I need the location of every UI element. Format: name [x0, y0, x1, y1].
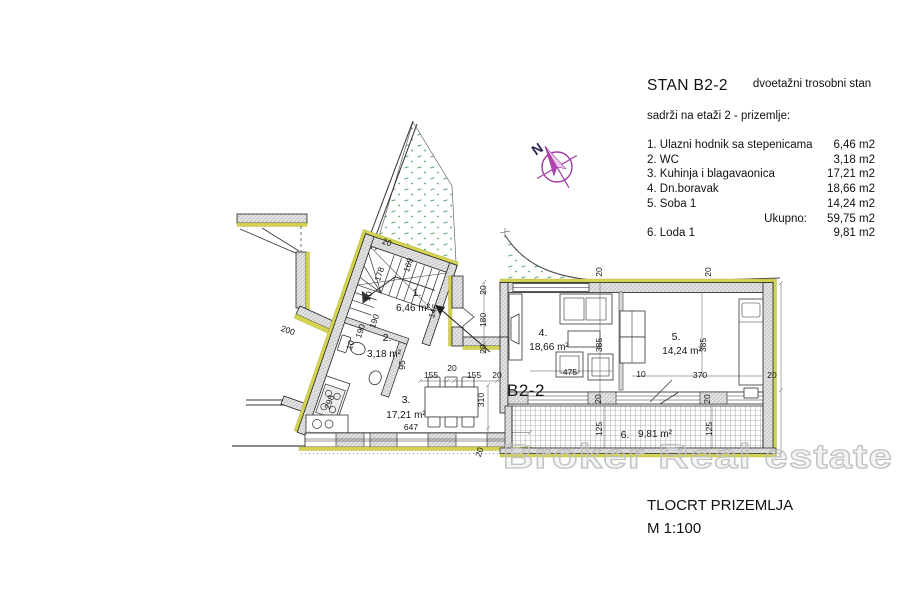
dim-label: 20	[447, 363, 457, 373]
legend-row: 1. Ulazni hodnik sa stepenicama 6,46 m2	[647, 138, 875, 153]
dim-label: 95	[397, 360, 407, 370]
dim-label: 647	[404, 422, 418, 432]
dim-label: 370	[693, 370, 707, 380]
apartment-title: STAN B2-2	[647, 79, 728, 93]
dim-label: 190	[367, 312, 381, 329]
legend-item-label	[647, 212, 764, 227]
north-label: N	[528, 139, 545, 158]
legend: STAN B2-2 dvoetažni trosobni stan sadrži…	[647, 78, 875, 241]
dim-label: 20	[702, 394, 712, 404]
legend-item-label: 3. Kuhinja i blagavaonica	[647, 167, 823, 182]
floor-plan-page: 20 169 178 10 190 190 10 146 95 20 20 20…	[0, 0, 900, 600]
dim-label: 20	[478, 285, 488, 295]
dim-label: 310	[476, 393, 486, 407]
dim-label: 20	[492, 370, 502, 380]
wardrobe	[620, 311, 645, 337]
dim-label: 125	[704, 422, 714, 436]
dim-label: 125	[594, 422, 604, 436]
room-area: 17,21 m²	[386, 410, 426, 421]
dim-label: 20	[767, 370, 777, 380]
unit-label: B2-2	[507, 381, 545, 400]
dim-label: 20	[478, 344, 488, 354]
pillow	[742, 303, 760, 317]
dim-label: 180	[478, 313, 488, 327]
room-number: 2.	[383, 332, 392, 344]
room-number: 5.	[672, 331, 681, 343]
wardrobe	[620, 337, 645, 363]
entry-door-swing	[463, 308, 474, 326]
dim-label: 155	[467, 370, 481, 380]
legend-item-label: 4. Dn.boravak	[647, 182, 823, 197]
legend-item-area: 59,75 m2	[823, 212, 875, 227]
dim-label: 385	[594, 338, 604, 352]
dining-table-set	[425, 377, 478, 427]
dim-label: 10	[362, 290, 375, 302]
drawing-scale: M 1:100	[647, 521, 793, 536]
tv	[511, 314, 519, 344]
legend-item-area: 9,81 m2	[823, 226, 875, 241]
legend-row: 4. Dn.boravak 18,66 m2	[647, 182, 875, 197]
neighbour-wall-top-left	[237, 214, 342, 337]
nightstand	[744, 388, 758, 398]
watermark: Broker Real estate	[503, 438, 893, 476]
north-compass-icon: N	[525, 135, 589, 200]
legend-total-label: Ukupno:	[764, 212, 823, 227]
legend-rows: 1. Ulazni hodnik sa stepenicama 6,46 m2 …	[647, 138, 875, 241]
legend-item-area: 14,24 m2	[823, 197, 875, 212]
dim-label: 155	[424, 370, 438, 380]
legend-item-label: 5. Soba 1	[647, 197, 823, 212]
dim-label: 20	[703, 267, 713, 277]
legend-item-label: 2. WC	[647, 153, 823, 168]
living-room-furniture	[509, 294, 613, 380]
dim-label: 475	[563, 367, 577, 377]
room-number: 1.	[413, 287, 422, 299]
legend-item-area: 3,18 m2	[823, 153, 875, 168]
room-area: 6,46 m²	[396, 303, 431, 314]
legend-item-label: 1. Ulazni hodnik sa stepenicama	[647, 138, 823, 153]
room-number: 3.	[402, 394, 411, 406]
legend-item-label: 6. Loda 1	[647, 226, 823, 241]
dim-label: 200	[280, 323, 297, 337]
room-area: 18,66 m²	[529, 342, 569, 353]
legend-row-total: Ukupno: 59,75 m2	[647, 212, 875, 227]
dim-label: 10	[636, 369, 646, 379]
legend-row: 3. Kuhinja i blagavaonica 17,21 m2	[647, 167, 875, 182]
legend-row: 2. WC 3,18 m2	[647, 153, 875, 168]
dim-label: 178	[372, 265, 386, 282]
legend-item-area: 18,66 m2	[823, 182, 875, 197]
legend-item-area: 6,46 m2	[823, 138, 875, 153]
drawing-title-block: TLOCRT PRIZEMLJA M 1:100	[647, 498, 793, 536]
room-area: 3,18 m²	[367, 349, 402, 360]
drawing-title: TLOCRT PRIZEMLJA	[647, 498, 793, 513]
legend-row: 5. Soba 1 14,24 m2	[647, 197, 875, 212]
legend-intro: sadrži na etaži 2 - prizemlje:	[647, 110, 875, 124]
room-number: 4.	[539, 327, 548, 339]
legend-item-area: 17,21 m2	[823, 167, 875, 182]
legend-row: 6. Loda 1 9,81 m2	[647, 226, 875, 241]
wc-sink	[367, 369, 383, 386]
apartment-subtitle: dvoetažni trosobni stan	[753, 78, 871, 93]
room-area: 14,24 m²	[662, 346, 702, 357]
dim-label: 20	[594, 267, 604, 277]
dim-label: 20	[593, 394, 603, 404]
